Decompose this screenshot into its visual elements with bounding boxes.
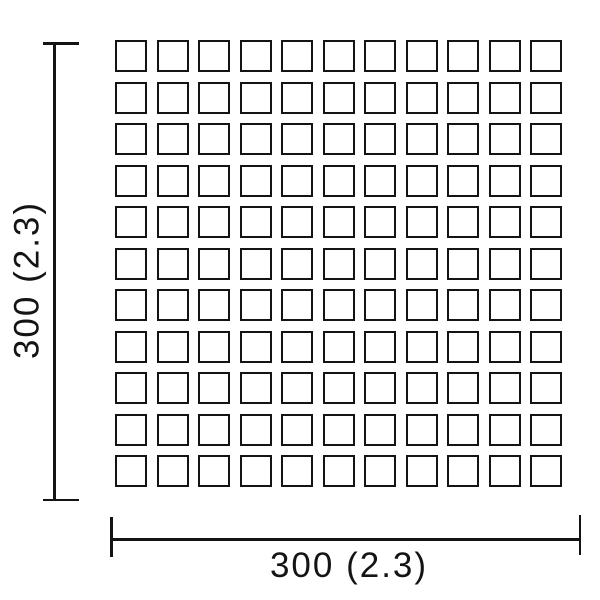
- tile-square: [447, 331, 479, 363]
- tile-square: [198, 82, 230, 114]
- tile-square: [447, 248, 479, 280]
- tile-square: [406, 206, 438, 238]
- tile-square: [240, 289, 272, 321]
- tile-square: [198, 414, 230, 446]
- tile-square: [447, 289, 479, 321]
- tile-square: [240, 206, 272, 238]
- tile-square: [115, 123, 147, 155]
- tile-square: [157, 372, 189, 404]
- tile-square: [489, 414, 521, 446]
- horizontal-dimension-label: 300 (2.3): [270, 548, 428, 583]
- tile-square: [447, 414, 479, 446]
- horizontal-dimension-right-tick: [579, 515, 582, 555]
- tile-square: [323, 165, 355, 197]
- tile-square: [240, 40, 272, 72]
- tile-square: [240, 331, 272, 363]
- tile-square: [157, 165, 189, 197]
- tile-square: [198, 123, 230, 155]
- tile-square: [281, 82, 313, 114]
- tile-square: [489, 289, 521, 321]
- tile-square: [323, 372, 355, 404]
- tile-square: [364, 248, 396, 280]
- tile-square: [240, 372, 272, 404]
- tile-square: [323, 248, 355, 280]
- vertical-dimension-top-tick: [43, 42, 79, 45]
- tile-square: [281, 123, 313, 155]
- tile-square: [364, 455, 396, 487]
- tile-square: [447, 206, 479, 238]
- tile-square: [406, 289, 438, 321]
- tile-square: [364, 289, 396, 321]
- vertical-dimension-bottom-tick: [43, 499, 79, 502]
- tile-square: [281, 40, 313, 72]
- tile-square: [364, 414, 396, 446]
- tile-square: [530, 372, 562, 404]
- tile-square: [115, 82, 147, 114]
- tile-square: [323, 289, 355, 321]
- tile-square: [530, 331, 562, 363]
- tile-square: [240, 165, 272, 197]
- tile-square: [198, 206, 230, 238]
- tile-square: [240, 455, 272, 487]
- tile-square: [364, 82, 396, 114]
- tile-square: [115, 248, 147, 280]
- tile-square: [530, 82, 562, 114]
- tile-square: [406, 372, 438, 404]
- tile-grid: [115, 40, 562, 487]
- tile-square: [530, 414, 562, 446]
- tile-square: [115, 289, 147, 321]
- vertical-dimension-line: [53, 42, 56, 501]
- tile-square: [323, 206, 355, 238]
- tile-square: [281, 455, 313, 487]
- tile-square: [530, 40, 562, 72]
- tile-square: [198, 248, 230, 280]
- tile-square: [323, 455, 355, 487]
- tile-square: [198, 40, 230, 72]
- tile-square: [489, 248, 521, 280]
- tile-square: [364, 206, 396, 238]
- tile-square: [115, 165, 147, 197]
- tile-square: [530, 289, 562, 321]
- tile-square: [406, 455, 438, 487]
- tile-square: [530, 123, 562, 155]
- tile-square: [489, 165, 521, 197]
- tile-square: [406, 331, 438, 363]
- tile-square: [198, 372, 230, 404]
- tile-square: [157, 414, 189, 446]
- tile-square: [447, 372, 479, 404]
- tile-square: [157, 331, 189, 363]
- tile-square: [198, 165, 230, 197]
- tile-square: [281, 206, 313, 238]
- tile-square: [198, 455, 230, 487]
- tile-square: [115, 455, 147, 487]
- tile-square: [447, 82, 479, 114]
- tile-square: [364, 331, 396, 363]
- tile-square: [364, 123, 396, 155]
- tile-square: [323, 123, 355, 155]
- tile-square: [364, 40, 396, 72]
- tile-square: [489, 372, 521, 404]
- drawing-canvas: 300 (2.3) 300 (2.3): [0, 0, 600, 600]
- tile-square: [115, 331, 147, 363]
- tile-square: [489, 82, 521, 114]
- tile-square: [281, 165, 313, 197]
- horizontal-dimension-left-tick: [110, 517, 113, 557]
- tile-square: [115, 372, 147, 404]
- tile-square: [406, 40, 438, 72]
- tile-square: [489, 40, 521, 72]
- tile-square: [157, 248, 189, 280]
- tile-square: [364, 165, 396, 197]
- horizontal-dimension-line: [111, 538, 581, 541]
- tile-square: [530, 455, 562, 487]
- tile-square: [489, 123, 521, 155]
- tile-square: [323, 82, 355, 114]
- tile-square: [364, 372, 396, 404]
- tile-square: [447, 455, 479, 487]
- tile-square: [240, 123, 272, 155]
- tile-square: [198, 331, 230, 363]
- tile-square: [240, 414, 272, 446]
- tile-square: [530, 206, 562, 238]
- tile-square: [447, 123, 479, 155]
- tile-square: [115, 40, 147, 72]
- tile-square: [157, 123, 189, 155]
- tile-square: [406, 414, 438, 446]
- tile-square: [240, 82, 272, 114]
- tile-square: [489, 455, 521, 487]
- tile-square: [406, 165, 438, 197]
- tile-square: [240, 248, 272, 280]
- tile-square: [157, 82, 189, 114]
- tile-square: [530, 248, 562, 280]
- tile-square: [406, 82, 438, 114]
- tile-square: [157, 40, 189, 72]
- tile-square: [281, 248, 313, 280]
- tile-square: [115, 414, 147, 446]
- tile-square: [406, 123, 438, 155]
- tile-square: [198, 289, 230, 321]
- tile-square: [489, 206, 521, 238]
- tile-square: [281, 372, 313, 404]
- vertical-dimension-label: 300 (2.3): [10, 201, 45, 359]
- tile-square: [489, 331, 521, 363]
- tile-square: [157, 206, 189, 238]
- tile-square: [281, 289, 313, 321]
- tile-square: [157, 289, 189, 321]
- tile-square: [323, 40, 355, 72]
- tile-square: [447, 40, 479, 72]
- tile-square: [447, 165, 479, 197]
- tile-square: [323, 414, 355, 446]
- tile-square: [406, 248, 438, 280]
- tile-square: [157, 455, 189, 487]
- tile-square: [323, 331, 355, 363]
- tile-square: [115, 206, 147, 238]
- tile-square: [281, 414, 313, 446]
- tile-square: [530, 165, 562, 197]
- tile-square: [281, 331, 313, 363]
